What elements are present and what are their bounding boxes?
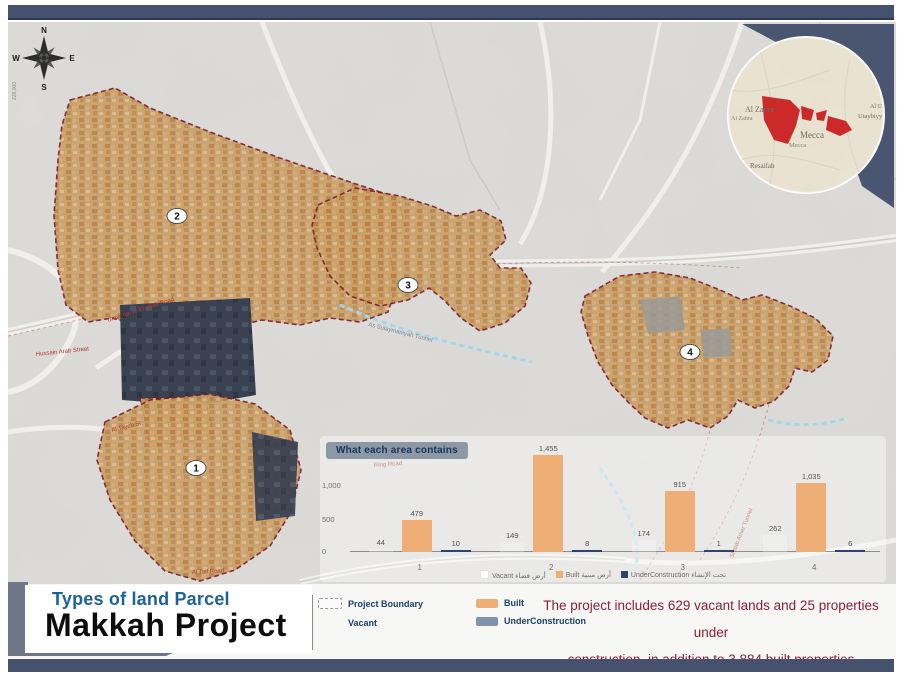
- chart-legend-uc: UnderConstruction تحت الإنشاء: [621, 571, 726, 579]
- bar-rect: [796, 483, 826, 552]
- bar-rect: [441, 550, 471, 552]
- bar-group-area-4: 2621,03564: [763, 436, 865, 556]
- legend-label: Project Boundary: [348, 599, 423, 609]
- bar-value-label: 6: [848, 539, 852, 548]
- bar-built-area-1: 479: [402, 509, 432, 552]
- bar-value-label: 262: [769, 524, 782, 533]
- bar-vacant-area-3: 174: [632, 529, 656, 552]
- bar-vacant-area-1: 44: [369, 538, 393, 552]
- bar-rect: [704, 550, 734, 552]
- built-swatch-icon: [476, 599, 498, 608]
- bar-value-label: 10: [452, 539, 460, 548]
- marker-4: 4: [680, 345, 700, 360]
- bar-rect: [533, 455, 563, 552]
- boundary-swatch-icon: [318, 598, 342, 609]
- bar-group-area-2: 1491,45582: [500, 436, 602, 556]
- poster-title: Makkah Project: [45, 607, 287, 644]
- bar-value-label: 1: [717, 539, 721, 548]
- bar-underconstruction-area-3: 1: [704, 539, 734, 552]
- y-axis-tick: 1,000: [322, 481, 341, 490]
- chart-panel: What each area contains 1,000 500 0 4447…: [320, 436, 886, 582]
- bar-built-area-2: 1,455: [533, 444, 563, 552]
- legend-label: Vacant: [348, 618, 377, 628]
- legend-divider: [312, 595, 313, 650]
- construction-zone: [120, 298, 256, 406]
- grid-coordinate-label: 228,000: [12, 82, 18, 100]
- svg-text:2: 2: [174, 212, 180, 223]
- summary-line-1: The project includes 629 vacant lands an…: [543, 598, 878, 640]
- marker-3: 3: [398, 278, 418, 293]
- bottom-frame-bar: [8, 659, 894, 672]
- svg-text:Resaifah: Resaifah: [750, 162, 775, 170]
- marker-1: 1: [186, 461, 206, 476]
- svg-text:E: E: [69, 54, 75, 63]
- bar-built-area-4: 1,035: [796, 472, 826, 552]
- bar-rect: [632, 540, 656, 552]
- vacant-swatch-icon: [318, 617, 342, 628]
- bar-vacant-area-4: 262: [763, 524, 787, 552]
- bar-value-label: 174: [637, 529, 650, 538]
- bar-rect: [369, 549, 393, 552]
- svg-text:3: 3: [405, 281, 411, 292]
- svg-text:Mecca: Mecca: [800, 130, 824, 140]
- svg-text:Al U: Al U: [870, 104, 883, 110]
- bar-value-label: 44: [377, 538, 385, 547]
- top-frame-bar: [8, 5, 894, 20]
- bar-group-area-3: 17491513: [632, 436, 734, 556]
- y-axis-tick: 500: [322, 515, 335, 524]
- legend-label: Built: [504, 598, 524, 608]
- legend-item-vacant: Vacant: [318, 617, 448, 628]
- svg-text:4: 4: [687, 348, 693, 359]
- bar-plot: 444791011491,45582174915132621,03564: [354, 440, 880, 556]
- bar-group-area-1: 44479101: [369, 436, 471, 556]
- bar-vacant-area-2: 149: [500, 531, 524, 552]
- bar-rect: [763, 535, 787, 552]
- bar-rect: [500, 542, 524, 552]
- svg-text:Al Zahra: Al Zahra: [745, 105, 774, 114]
- bar-value-label: 8: [585, 539, 589, 548]
- svg-text:1: 1: [193, 464, 199, 475]
- bar-value-label: 1,035: [802, 472, 821, 481]
- bar-rect: [572, 550, 602, 552]
- svg-text:Al Zahra: Al Zahra: [731, 116, 753, 122]
- bar-underconstruction-area-4: 6: [835, 539, 865, 552]
- chart-legend-vacant: Vacant أرض فضاء: [480, 570, 546, 580]
- chart-legend: Vacant أرض فضاء Built أرض مبنية UnderCon…: [320, 570, 886, 580]
- legend-item-boundary: Project Boundary: [318, 598, 448, 609]
- svg-text:S: S: [41, 83, 47, 92]
- title-card: Types of land Parcel Makkah Project: [25, 585, 312, 653]
- underconstruction-swatch-icon: [476, 617, 498, 626]
- bar-value-label: 479: [410, 509, 423, 518]
- bar-value-label: 149: [506, 531, 519, 540]
- bar-rect: [665, 491, 695, 552]
- bar-underconstruction-area-1: 10: [441, 539, 471, 552]
- chart-legend-built: Built أرض مبنية: [556, 571, 611, 579]
- bar-value-label: 1,455: [539, 444, 558, 453]
- bar-underconstruction-area-2: 8: [572, 539, 602, 552]
- y-axis-tick: 0: [322, 547, 326, 556]
- built-swatch: [556, 571, 563, 578]
- underconstruction-swatch: [621, 571, 628, 578]
- svg-text:Mecca: Mecca: [789, 142, 806, 149]
- bar-rect: [835, 550, 865, 552]
- bar-value-label: 915: [673, 480, 686, 489]
- svg-text:W: W: [12, 54, 20, 63]
- bar-built-area-3: 915: [665, 480, 695, 552]
- marker-2: 2: [167, 209, 187, 224]
- svg-text:Utaybiyy: Utaybiyy: [858, 113, 883, 120]
- bar-rect: [402, 520, 432, 552]
- construction-zone-2: [252, 432, 298, 521]
- vacant-swatch: [480, 570, 489, 579]
- poster: Hussain Arab Street Umar Ibn Al Khattab …: [0, 0, 904, 678]
- svg-text:N: N: [41, 26, 47, 35]
